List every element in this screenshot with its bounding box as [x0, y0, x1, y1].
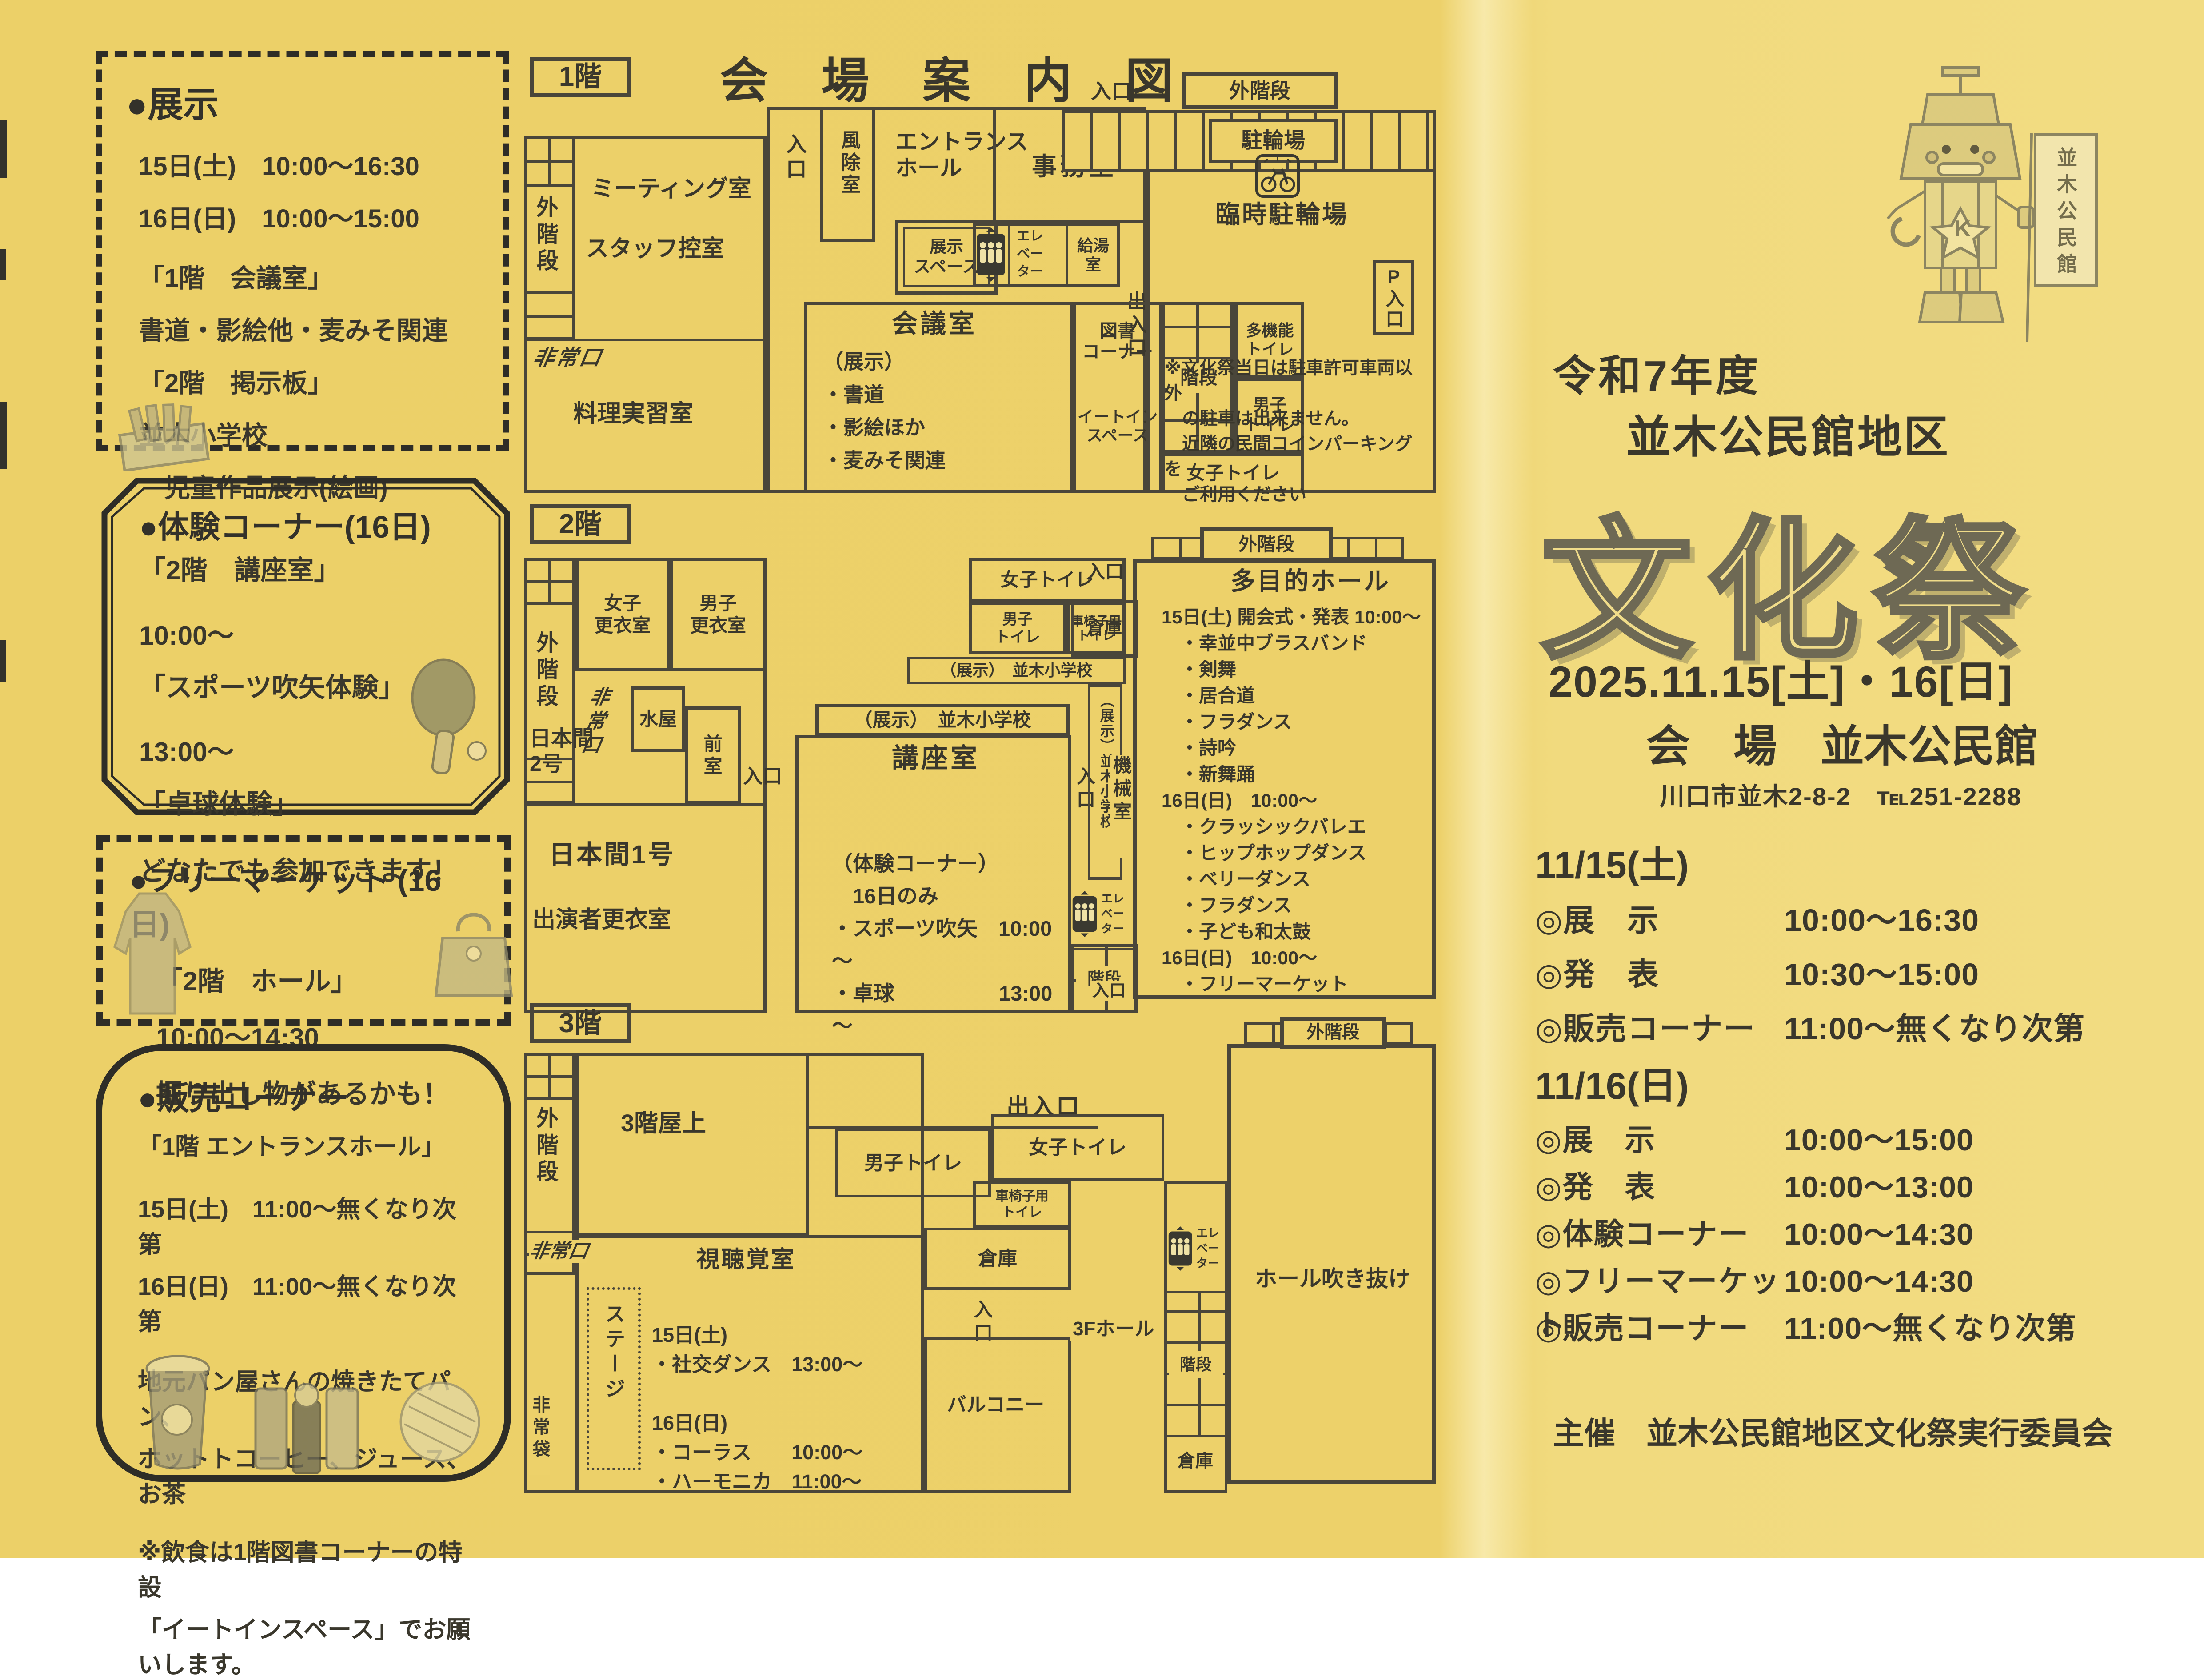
schedule-row-time: 10:30～15:00	[1784, 950, 1979, 994]
floor2-lecture-room: 講座室 （体験コーナー） 16日のみ・スポーツ吹矢 10:00～・卓球 13:0…	[795, 735, 1071, 1013]
floor1-parking-note: ※文化祭当日は駐車許可車両以外 の駐車は出来ません。 近隣の民間コインパーキング…	[1164, 355, 1426, 507]
crayon-box-image	[115, 396, 217, 471]
list-item: ・書道	[823, 378, 946, 411]
floor3-women-toilet: 女子トイレ	[991, 1114, 1164, 1181]
floor2-label-box: 2階	[530, 504, 631, 544]
floor2-tenji-strip-label: （展示） 並木小学校	[854, 709, 1031, 731]
list-item: ・卓球 13:00～	[832, 977, 1068, 1042]
sale-info-box: ●販売コーナー 「1階 エントランスホール」15日(土) 11:00～無くなり次…	[96, 1044, 511, 1482]
floor1-conference-exhibits: （展示）・書道・影絵ほか・麦みそ関連	[823, 345, 946, 477]
scan-artifact	[0, 120, 7, 178]
floor2-storage1-label: 倉庫	[1074, 603, 1134, 654]
floor3-emergency-exit-label: 非常口	[527, 1240, 590, 1263]
floor3-label: 3階	[559, 1007, 602, 1039]
list-item: ※文化祭当日は駐車許可車両以外	[1164, 355, 1426, 406]
district-line: 並木公民館地区	[1626, 411, 1950, 463]
floor1-bike-label: 駐輪場	[1241, 128, 1305, 154]
robot-mascot: K 並木公民館	[1813, 62, 2106, 355]
floor1-kyuto-label: 給湯 室	[1066, 223, 1120, 287]
floor2-lecture-label: 講座室	[892, 743, 980, 774]
floor2-performer-changing-label: 出演者更衣室	[532, 906, 671, 934]
list-item	[652, 1379, 862, 1409]
festival-title: 文化祭	[1541, 469, 2040, 687]
floor3-stairs-grid: 階段	[1164, 1291, 1227, 1437]
floor3-emergency-bag-label: 非常袋	[529, 1395, 550, 1475]
scan-artifact	[0, 402, 7, 469]
list-item: 「1階 エントランスホール」	[138, 1127, 478, 1162]
elevator-people-icon	[1072, 891, 1098, 937]
exhibition-heading: ●展示	[126, 76, 478, 128]
floor2-tenji-strip2-label: （展示） 並木小学校	[940, 661, 1092, 680]
list-item: 書道・影絵他・麦みそ関連	[139, 310, 478, 347]
list-item: ・クラッシックバレエ	[1162, 814, 1421, 840]
taiken-info-box: ●体験コーナー(16日) 「2階 講座室」10:00～「スポーツ吹矢体験」13:…	[101, 478, 510, 815]
day2-schedule: ◎展 示10:00～15:00◎発 表10:00～13:00◎体験コーナー10:…	[1535, 1115, 2180, 1351]
floor3-balcony-label: バルコニー	[947, 1393, 1044, 1417]
floor2-stairs-grid: 階段	[1071, 944, 1138, 1013]
floor3-gaikaidan-box: 外階段	[1280, 1017, 1386, 1049]
day1-heading: 11/15(土)	[1535, 843, 1689, 887]
floor1-label: 1階	[559, 60, 602, 93]
floor3-roof: 3階屋上	[575, 1053, 809, 1236]
floor1-p-entry-box: P入口	[1373, 260, 1414, 335]
schedule-row-time: 11:00～無くなり次第	[1784, 1304, 2076, 1348]
list-item: ・ヒップホップダンス	[1162, 840, 1421, 866]
floor2-entry3-label: 入口	[743, 765, 782, 788]
floor3-wheelchair-toilet-label: 車椅子用 トイレ	[976, 1184, 1068, 1225]
list-item: ・居合道	[1162, 682, 1421, 709]
list-item: ◎販売コーナー11:00～無くなり次第	[1535, 1304, 2180, 1351]
schedule-row-label: ◎展 示	[1535, 1115, 1784, 1159]
list-item: ・コーラス 10:00～	[652, 1438, 862, 1467]
address-line: 川口市並木2-8-2 ℡251-2288	[1660, 782, 2022, 811]
floor2-multipurpose-hall: 多目的ホール 15日(土) 開会式・発表 10:00～ ・幸並中ブラスバンド ・…	[1133, 559, 1436, 999]
list-item: の駐車は出来ません。	[1164, 406, 1426, 431]
scan-artifact	[0, 249, 6, 280]
flea-market-info-box: ●フリーマーケット (16日) 「2階 ホール」10:00～14:30掘り出し物…	[96, 835, 511, 1026]
floor2-gaikaidan-box: 外階段	[1200, 527, 1333, 562]
floor2-zenshitsu: 前 室	[685, 706, 741, 804]
list-item: ・フラダンス	[1162, 709, 1421, 735]
floor1-p-entry-label: P入口	[1382, 266, 1405, 330]
exhibition-info-box: ●展示 15日(土) 10:00～16:3016日(日) 10:00～15:00…	[96, 51, 509, 451]
schedule-row-label: ◎販売コーナー	[1535, 1304, 1784, 1348]
list-item: ・新舞踊	[1162, 761, 1421, 787]
floor1-staff-room-label: スタッフ控室	[586, 235, 724, 263]
list-item: ◎体験コーナー10:00～14:30	[1535, 1209, 2180, 1257]
mascot-chest-letter: K	[1954, 216, 1971, 242]
floor1-conference-room: 会議室 （展示）・書道・影絵ほか・麦みそ関連	[804, 302, 1073, 493]
coffee-cup-image	[138, 1344, 218, 1473]
list-item: （体験コーナー）	[832, 847, 1068, 880]
schedule-row-time: 10:00～14:30	[1784, 1257, 1974, 1301]
day2-heading: 11/16(日)	[1535, 1064, 1689, 1108]
floor3-stage-label: ステージ	[602, 1303, 626, 1454]
list-item: 「イートインスペース」でお願いします。	[138, 1610, 478, 1680]
list-item: 15日(土) 開会式・発表 10:00～	[1162, 604, 1421, 630]
list-item: ◎発 表10:00～13:00	[1535, 1162, 2180, 1209]
list-item: ・ハーモニカ 11:00～	[652, 1467, 862, 1496]
floor2-elevator-label: エレ ベー ター	[1101, 891, 1124, 936]
floor2-hall-bottom-entry: 入口	[1090, 981, 1129, 1001]
floor1-windbreak-label: 風除室	[837, 130, 860, 227]
floor2-zenshitsu-label: 前 室	[688, 710, 738, 801]
elevator-people-icon	[976, 227, 1006, 282]
floor3-men-toilet: 男子トイレ	[835, 1129, 991, 1197]
floor1-meeting-room-label: ミーティング室	[591, 176, 751, 203]
list-item: ・剣舞	[1162, 656, 1421, 682]
floor2-men-toilet-label: 男子 トイレ	[972, 605, 1063, 651]
list-item: 「卓球体験」	[139, 782, 459, 821]
elevator-people-icon	[1168, 1226, 1193, 1271]
floor3-atrium: ホール吹き抜け	[1227, 1044, 1436, 1484]
floor1-temp-bike-label: 臨時駐輪場	[1215, 200, 1349, 229]
floor2-men-changing-label: 男子 更衣室	[673, 561, 763, 668]
list-item: ・ベリーダンス	[1162, 866, 1421, 892]
handbag-image	[431, 896, 516, 1007]
floor2-taiken-lines: （体験コーナー） 16日のみ・スポーツ吹矢 10:00～・卓球 13:00～	[832, 847, 1068, 1042]
floor2-hall-program: 15日(土) 開会式・発表 10:00～ ・幸並中ブラスバンド ・剣舞 ・居合道…	[1162, 604, 1421, 997]
floor3-hall3f-label: 3Fホール	[1070, 1317, 1157, 1341]
floor2-mizuya: 水屋	[631, 686, 685, 752]
floor1-conference-label: 会議室	[892, 309, 977, 339]
floor3-storage-mid-label: 倉庫	[927, 1230, 1068, 1287]
floor3-av-room-label: 視聴覚室	[696, 1246, 796, 1273]
list-item: 16日(日) 10:00～15:00	[139, 198, 478, 235]
floor1-west-stairs-label: 外階段	[532, 196, 559, 293]
coat-image	[108, 885, 197, 1022]
sale-heading: ●販売コーナー	[129, 1072, 478, 1119]
floor3-elevator-label: エレ ベー ター	[1196, 1225, 1219, 1271]
list-item: 「2階 掲示板」	[139, 362, 478, 399]
floor3-wheelchair-toilet: 車椅子用 トイレ	[973, 1181, 1071, 1228]
floor1-label-box: 1階	[530, 57, 631, 97]
floor3-balcony: バルコニー	[924, 1337, 1071, 1493]
festival-date-line: 2025.11.15[土]・16[日]	[1549, 657, 2013, 707]
list-item: 16日(日) 10:00～	[1162, 945, 1421, 971]
list-item: 15日(土) 10:00～16:30	[139, 145, 478, 183]
floor3-west-stairs-label: 外階段	[532, 1106, 559, 1213]
floor1-top-entry-label: 入口	[1091, 79, 1132, 103]
list-item: ご利用ください	[1164, 482, 1426, 507]
floor3-men-toilet-label: 男子トイレ	[838, 1131, 988, 1195]
floor2-machine-label: 機械室	[1110, 755, 1132, 858]
taiken-heading: ●体験コーナー(16日)	[139, 502, 431, 547]
bicycle-icon	[1255, 151, 1300, 198]
list-item: ・社交ダンス 13:00～	[652, 1350, 862, 1379]
bread-image	[391, 1375, 489, 1469]
list-item: 近隣の民間コインパーキングを	[1164, 431, 1426, 482]
floor3-atrium-label: ホール吹き抜け	[1231, 1266, 1434, 1292]
floor3-women-toilet-label: 女子トイレ	[994, 1117, 1162, 1178]
scan-artifact	[0, 640, 6, 682]
table-tennis-paddle-image	[395, 655, 492, 780]
floor3-storage-mid: 倉庫	[924, 1228, 1071, 1290]
floor3-av-room: 視聴覚室 ステージ 15日(土)・社交ダンス 13:00～16日(日)・コーラス…	[575, 1235, 924, 1493]
list-item: 16日(日) 10:00～	[1162, 787, 1421, 814]
floor3-storage-bottom-label: 倉庫	[1169, 1451, 1222, 1472]
list-item: ◎展 示10:00～15:00	[1535, 1115, 2180, 1162]
list-item: ・スポーツ吹矢 10:00～	[832, 912, 1068, 977]
floor3-av-program: 15日(土)・社交ダンス 13:00～16日(日)・コーラス 10:00～・ハー…	[652, 1321, 862, 1496]
organizer-line: 主催 並木公民館地区文化祭実行委員会	[1553, 1415, 2113, 1452]
schedule-row-label: ◎体験コーナー	[1535, 1209, 1784, 1253]
floor3-gaikaidan-label: 外階段	[1306, 1022, 1360, 1043]
floor2-hall-top-entry: 入口	[1086, 561, 1124, 583]
scanned-flyer-page: ●展示 15日(土) 10:00～16:3016日(日) 10:00～15:00…	[0, 0, 2204, 1558]
schedule-row-time: 10:00～14:30	[1784, 1209, 1974, 1253]
list-item: ・フラダンス	[1162, 892, 1421, 918]
list-item: ・子ども和太鼓	[1162, 918, 1421, 945]
list-item: 「1階 会議室」	[139, 257, 478, 295]
floor2-women-changing-label: 女子 更衣室	[579, 561, 667, 668]
schedule-row-label: ◎展 示	[1535, 895, 1784, 940]
list-item: 15日(土) 11:00～無くなり次第	[138, 1189, 478, 1260]
floor2-hall-label: 多目的ホール	[1230, 567, 1390, 596]
schedule-row-label: ◎発 表	[1535, 1162, 1784, 1206]
list-item: ◎フリーマーケット10:00～14:30	[1535, 1257, 2180, 1304]
floor2-tenji-strip: （展示） 並木小学校	[815, 704, 1070, 736]
schedule-row-label: ◎販売コーナー	[1535, 1004, 1784, 1049]
floor1-gaikaidan-top-label: 外階段	[1229, 79, 1290, 103]
list-item: 10:00～	[139, 614, 459, 653]
mascot-flag-text: 並木公民館	[2054, 147, 2077, 280]
floor2-gaikaidan-label: 外階段	[1238, 533, 1294, 555]
floor1-windbreak-room: 風除室	[820, 107, 875, 242]
floor1-entry-label: 入口	[783, 133, 807, 204]
floor2-men-changing: 男子 更衣室	[670, 558, 767, 671]
floor3-label-box: 3階	[530, 1003, 631, 1043]
schedule-row-label: ◎発 表	[1535, 950, 1784, 994]
list-item: 16日(日)	[652, 1409, 862, 1438]
list-item: 「2階 講座室」	[139, 549, 459, 587]
floor3-stage-box: ステージ	[587, 1287, 641, 1470]
drink-bottles-image	[249, 1371, 364, 1477]
floor2-west-stairs-label: 外階段	[532, 631, 559, 738]
floor3-stairs-label: 階段	[1169, 1351, 1223, 1378]
list-item: ◎展 示10:00～16:30	[1535, 895, 2180, 950]
floor2-mizuya-label: 水屋	[634, 690, 682, 749]
list-item: ・麦みそ関連	[823, 444, 946, 477]
venue-line: 会 場 並木公民館	[1646, 721, 2038, 772]
schedule-row-time: 10:00～15:00	[1784, 1115, 1974, 1159]
list-item: ◎販売コーナー11:00～無くなり次第	[1535, 1004, 2180, 1058]
list-item: 16日のみ	[832, 880, 1068, 912]
schedule-row-time: 10:00～16:30	[1784, 895, 1979, 940]
list-item: ・影絵ほか	[823, 411, 946, 444]
list-item: （展示）	[823, 345, 946, 378]
day1-schedule: ◎展 示10:00～16:30◎発 表10:30～15:00◎販売コーナー11:…	[1535, 895, 2180, 1058]
floor2-women-changing: 女子 更衣室	[575, 558, 670, 671]
list-item: 15日(土)	[652, 1321, 862, 1350]
floor1-cooking-room-label: 料理実習室	[573, 400, 693, 428]
floor2-tenji-strip2: （展示） 並木小学校	[907, 657, 1126, 684]
floor1-gaikaidan-top-box: 外階段	[1182, 72, 1338, 109]
floor3-roof-label: 3階屋上	[621, 1109, 706, 1138]
floor2-label: 2階	[559, 508, 602, 540]
list-item: ・幸並中ブラスバンド	[1162, 630, 1421, 656]
floor2-men-toilet: 男子 トイレ	[969, 602, 1066, 654]
list-item: ※飲食は1階図書コーナーの特設	[138, 1532, 478, 1603]
list-item: ◎発 表10:30～15:00	[1535, 950, 2180, 1004]
floor2-storage1: 倉庫	[1071, 600, 1138, 658]
floor2-nihonma1-label: 日本間1号	[549, 840, 675, 870]
list-item: ・詩吟	[1162, 735, 1421, 761]
era-line: 令和7年度	[1553, 351, 1761, 401]
schedule-row-time: 10:00～13:00	[1784, 1162, 1974, 1206]
schedule-row-time: 11:00～無くなり次第	[1784, 1004, 2085, 1049]
list-item: ・フリーマーケット	[1162, 971, 1421, 997]
floor2-nihonma2-label: 日本間 2号	[530, 726, 594, 777]
floor1-elevator-label: エレ ベー ター	[1017, 227, 1043, 281]
list-item: 16日(日) 11:00～無くなり次第	[138, 1267, 478, 1337]
floor1-emergency-exit-label: 非常口	[531, 346, 605, 371]
list-item: 「2階 ホール」	[156, 960, 477, 998]
